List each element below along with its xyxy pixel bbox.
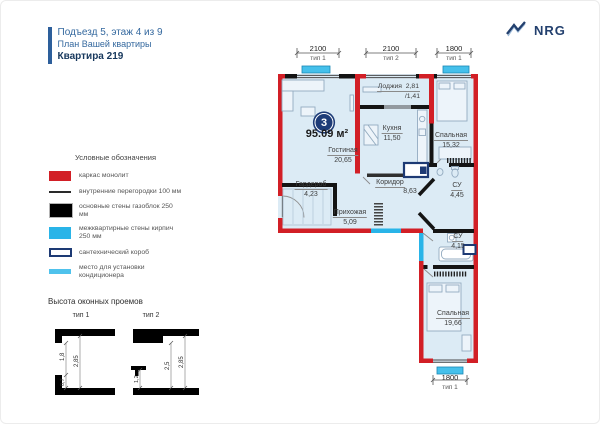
room-area: 20,65 <box>327 156 358 165</box>
type2-ledge-height: 1,2 <box>134 375 140 383</box>
swatch-partition-line <box>49 191 71 194</box>
dim-top3-type: тип 1 <box>446 55 463 62</box>
type1-window-height: 1,8 <box>60 352 66 361</box>
room-name: СУ <box>451 181 462 191</box>
room-name: СУ <box>452 232 463 242</box>
floor-plan-page: Подъезд 5, этаж 4 из 9 План Вашей кварти… <box>0 0 600 424</box>
room-area: 2,81 <box>406 83 419 90</box>
dim-top1: 2100 тип 1 <box>310 44 327 62</box>
swatch-ac-cyan <box>49 269 71 274</box>
dim-top2: 2100 тип 2 <box>383 44 400 62</box>
window-type1-diagram: 1,8 2,85 0,7 <box>51 323 121 405</box>
room-area: 4,15 <box>451 242 465 251</box>
room-name: Гардероб <box>295 180 328 190</box>
room-area: 5,09 <box>333 218 367 227</box>
legend-item-ac-place: место для установки кондиционера <box>49 264 219 280</box>
legend-label: каркас монолит <box>79 172 129 180</box>
room-label-kitchen: Кухня 11,50 <box>382 124 403 144</box>
room-area: 4,45 <box>450 191 464 200</box>
room-area: 4,23 <box>295 190 328 199</box>
swatch-sanitary-outline <box>49 248 72 257</box>
dim-top2-type: тип 2 <box>383 55 400 62</box>
room-label-living: Гостиная 20,65 <box>327 146 358 166</box>
type1-parapet-height: 0,7 <box>60 378 66 386</box>
dim-top2-width: 2100 <box>383 44 400 53</box>
type2-window-height: 2,5 <box>165 361 171 370</box>
window-heights-title: Высота оконных проемов <box>48 297 143 306</box>
room-name: Гостиная <box>327 146 358 156</box>
room-area: 15,32 <box>434 141 468 150</box>
room-label-bathroom1: СУ 4,45 <box>450 181 464 201</box>
room-name: Прихожая <box>333 208 367 218</box>
header-plan-caption: План Вашей квартиры <box>58 39 163 50</box>
legend-label: сантехнический короб <box>79 249 149 257</box>
room-label-loggia: Лоджия 2,81 /1,41 <box>374 82 420 101</box>
window-type2-diagram: 1,2 2,5 2,85 <box>129 323 207 405</box>
room-name: Спальная <box>434 131 468 141</box>
room-label-bedroom1: Спальная 15,32 <box>434 131 468 151</box>
header-entrance-floor: Подъезд 5, этаж 4 из 9 <box>58 27 163 39</box>
window-type1-label: тип 1 <box>73 312 90 319</box>
logo-text: NRG <box>534 23 566 38</box>
total-area: 95.09 м² <box>306 128 348 140</box>
dim-top3-width: 1800 <box>446 44 463 53</box>
window-type2-label: тип 2 <box>143 312 160 319</box>
room-name: Коридор <box>375 178 405 188</box>
header-apartment-number: Квартира 219 <box>58 50 163 63</box>
room-label-bedroom2: Спальная 19,66 <box>436 309 470 329</box>
room-area: 19,66 <box>436 319 470 328</box>
legend: Условные обозначения каркас монолит внут… <box>49 153 219 287</box>
dim-top3: 1800 тип 1 <box>446 44 463 62</box>
swatch-main-wall-black <box>49 203 73 218</box>
header-accent-bar <box>48 27 52 64</box>
dim-bottom-type: тип 1 <box>442 384 459 391</box>
room-name: Лоджия <box>378 83 402 90</box>
nrg-zigzag-icon <box>506 21 530 39</box>
room-area: 11,50 <box>382 134 403 143</box>
legend-item-partitions: внутренние перегородки 100 мм <box>49 188 219 196</box>
dim-bottom: 1800 тип 1 <box>442 373 459 391</box>
legend-title: Условные обозначения <box>75 153 219 162</box>
type2-total-height: 2,85 <box>179 356 185 368</box>
legend-item-brick-walls: межквартирные стены кирпич 250 мм <box>49 225 219 241</box>
legend-item-main-walls: основные стены газоблок 250 мм <box>49 203 219 219</box>
legend-label: внутренние перегородки 100 мм <box>79 188 181 196</box>
type1-total-height: 2,85 <box>74 355 80 367</box>
room-label-corridor: Коридор <box>375 178 405 188</box>
dim-top1-width: 2100 <box>310 44 327 53</box>
room-area-alt: /1,41 <box>374 92 420 101</box>
room-label-bathroom2: СУ 4,15 <box>451 232 465 252</box>
room-label-wardrobe: Гардероб 4,23 <box>295 180 328 200</box>
dim-top1-type: тип 1 <box>310 55 327 62</box>
legend-label: место для установки кондиционера <box>79 264 184 280</box>
header: Подъезд 5, этаж 4 из 9 План Вашей кварти… <box>48 27 163 64</box>
dim-bottom-width: 1800 <box>442 373 459 382</box>
legend-label: основные стены газоблок 250 мм <box>79 203 184 219</box>
room-area-corridor: 8,63 <box>403 188 417 195</box>
swatch-monolith-red <box>49 171 71 181</box>
legend-item-monolith: каркас монолит <box>49 171 219 181</box>
room-name: Кухня <box>382 124 403 134</box>
legend-item-sanitary-box: сантехнический короб <box>49 248 219 257</box>
swatch-brick-cyan <box>49 227 71 239</box>
room-label-hallway: Прихожая 5,09 <box>333 208 367 228</box>
logo: NRG <box>506 21 566 39</box>
header-text: Подъезд 5, этаж 4 из 9 План Вашей кварти… <box>58 27 163 64</box>
legend-label: межквартирные стены кирпич 250 мм <box>79 225 184 241</box>
room-name: Спальная <box>436 309 470 319</box>
